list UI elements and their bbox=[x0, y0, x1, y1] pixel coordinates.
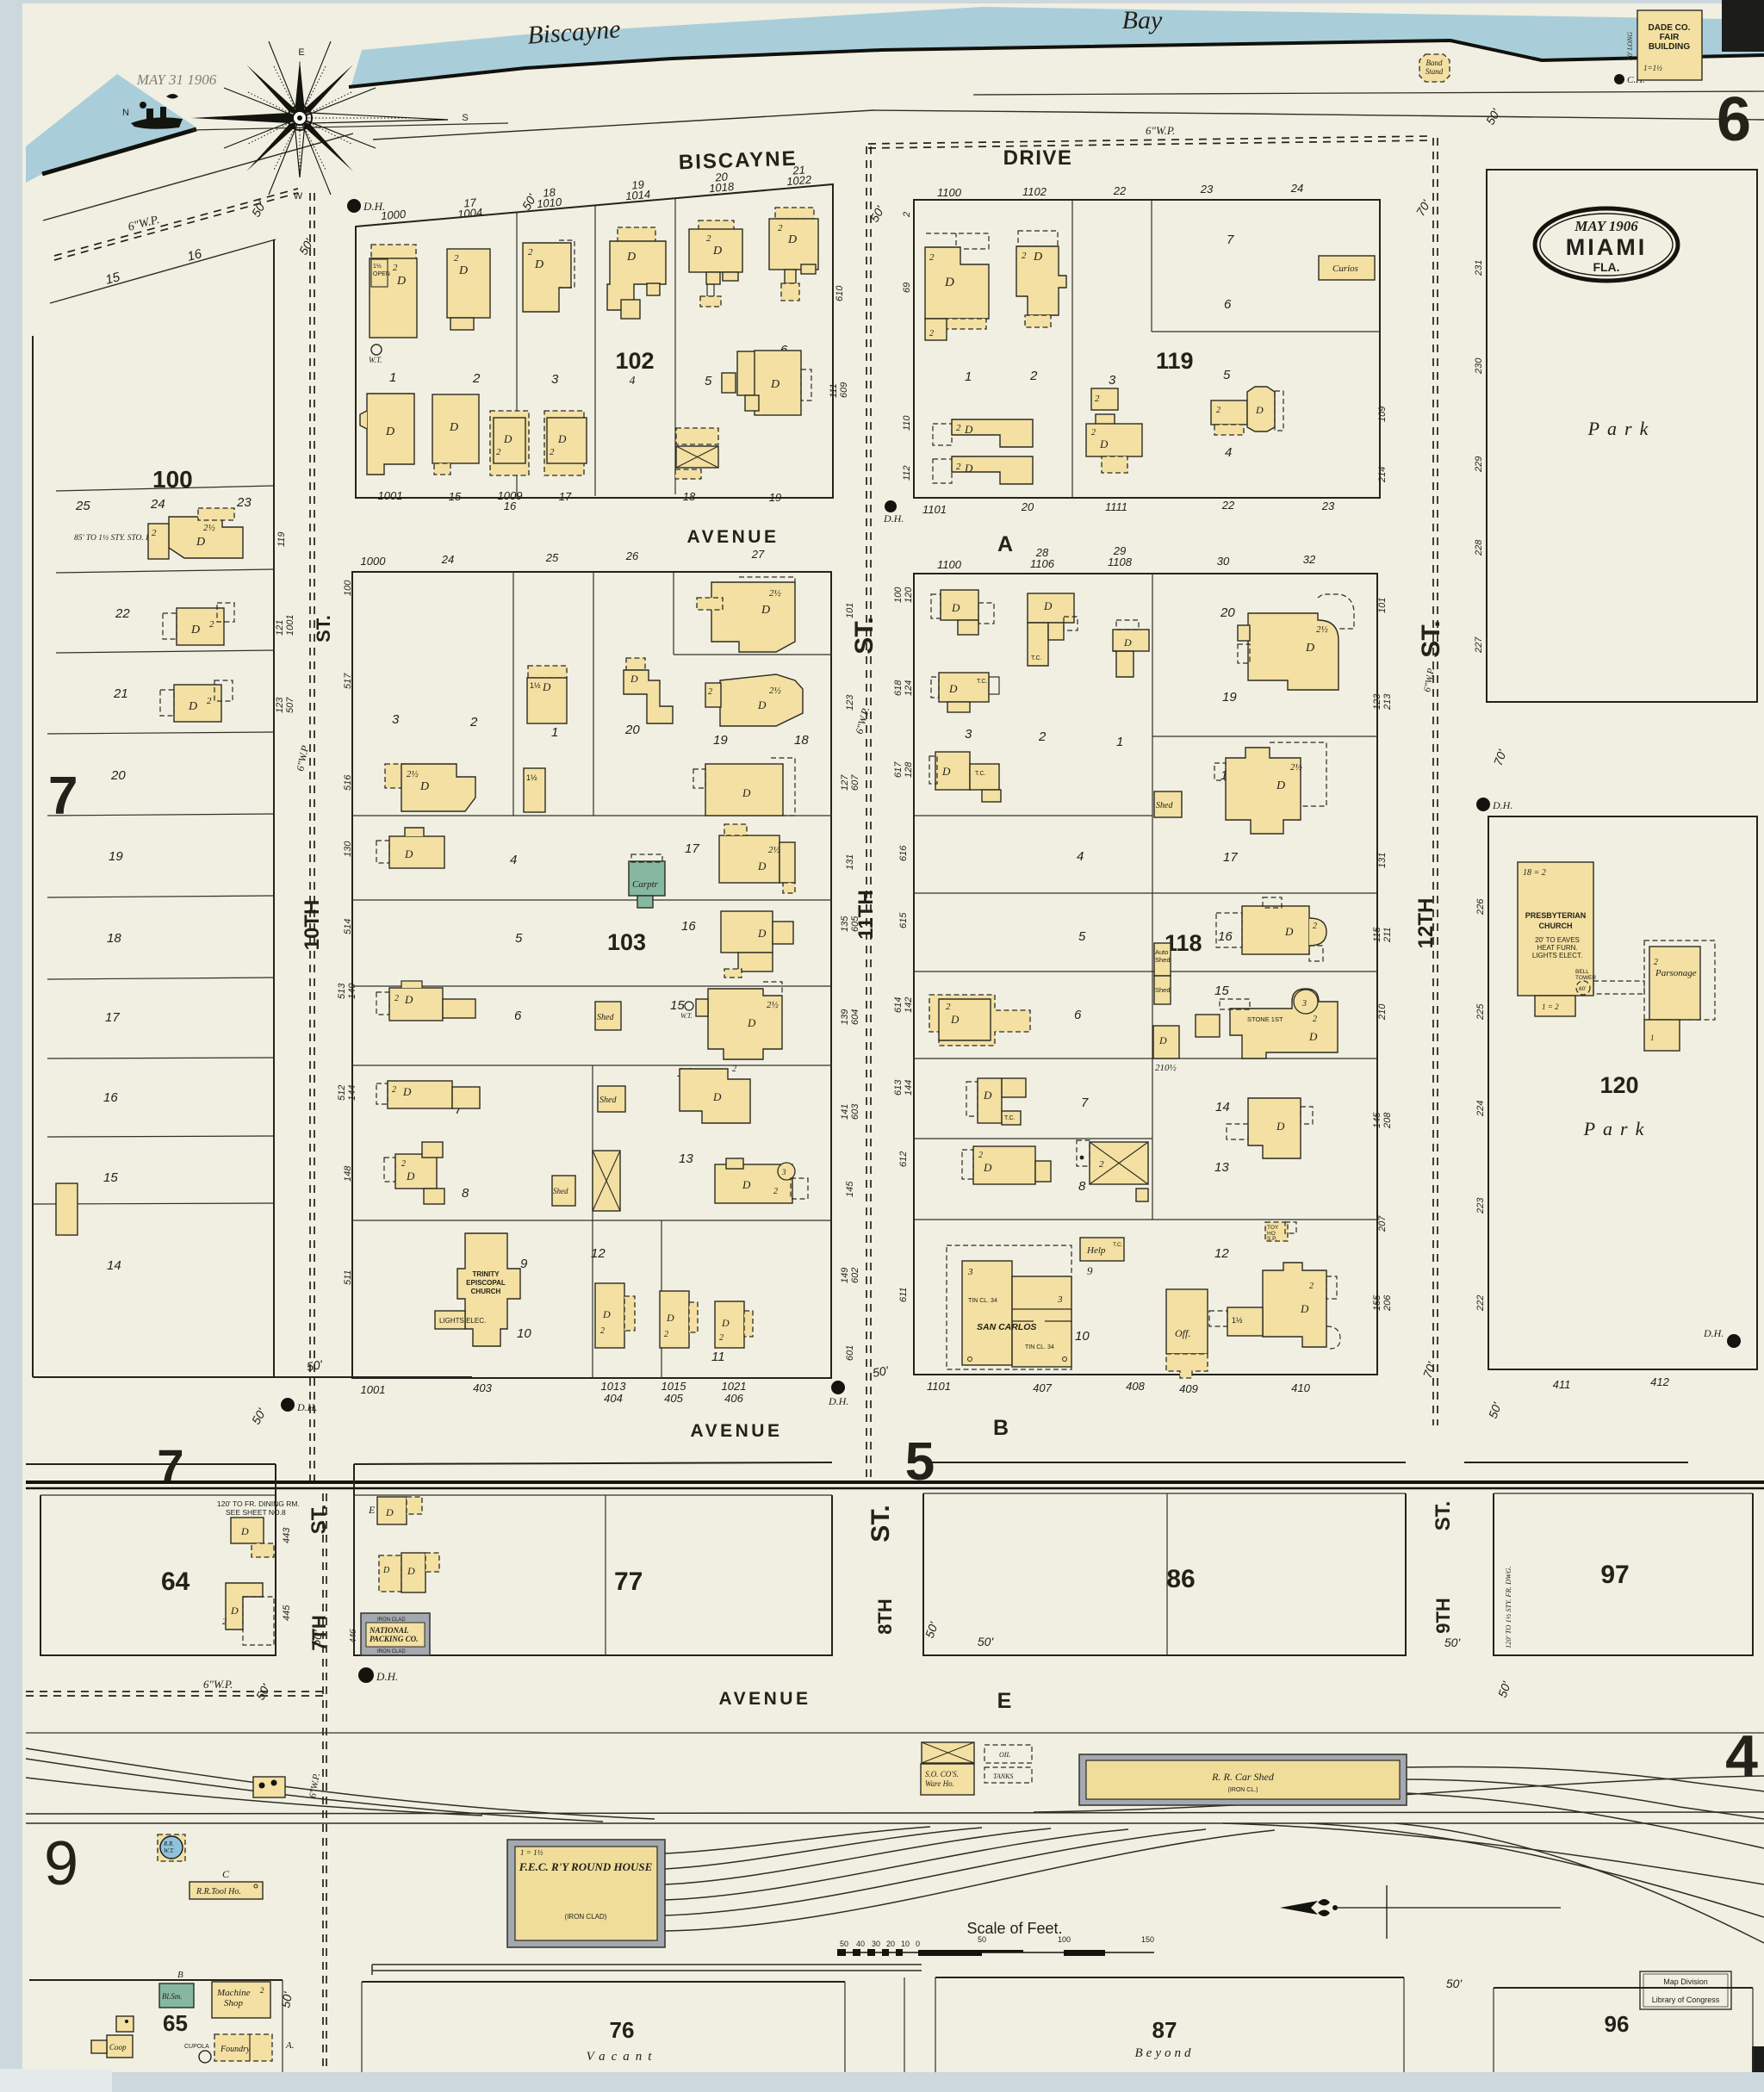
svg-text:D: D bbox=[602, 1308, 611, 1320]
svg-text:80' LONG: 80' LONG bbox=[1626, 32, 1634, 60]
svg-text:2: 2 bbox=[1029, 369, 1038, 383]
svg-text:1106: 1106 bbox=[1030, 557, 1055, 570]
svg-text:D: D bbox=[964, 462, 973, 475]
svg-text:R.R.: R.R. bbox=[163, 1841, 174, 1847]
svg-text:27: 27 bbox=[751, 548, 765, 561]
svg-text:2: 2 bbox=[978, 1151, 983, 1160]
svg-text:139: 139 bbox=[840, 1009, 850, 1025]
svg-text:123: 123 bbox=[845, 694, 855, 711]
svg-text:MIAMI: MIAMI bbox=[1566, 234, 1647, 260]
svg-text:222: 222 bbox=[1475, 1295, 1486, 1312]
svg-text:B: B bbox=[177, 1970, 183, 1980]
svg-text:D: D bbox=[419, 780, 429, 793]
svg-text:D: D bbox=[1158, 1034, 1167, 1046]
svg-text:D: D bbox=[402, 1085, 412, 1098]
svg-text:D: D bbox=[1099, 438, 1109, 450]
svg-text:2: 2 bbox=[207, 696, 212, 706]
svg-text:Shed: Shed bbox=[1156, 801, 1173, 810]
svg-text:1018: 1018 bbox=[709, 180, 736, 196]
svg-text:446: 446 bbox=[348, 1629, 358, 1643]
svg-text:D.H.: D.H. bbox=[883, 512, 904, 525]
svg-text:2: 2 bbox=[496, 447, 501, 457]
svg-text:3: 3 bbox=[1057, 1294, 1063, 1305]
svg-text:BELL: BELL bbox=[1575, 969, 1589, 975]
svg-text:W.T.: W.T. bbox=[164, 1847, 174, 1854]
svg-text:Foundry: Foundry bbox=[220, 2045, 251, 2054]
svg-text:102: 102 bbox=[615, 348, 654, 374]
svg-text:D.H.: D.H. bbox=[828, 1395, 848, 1407]
svg-text:2½: 2½ bbox=[769, 588, 781, 599]
svg-text:D: D bbox=[1255, 404, 1264, 416]
svg-text:110: 110 bbox=[902, 415, 912, 431]
svg-text:20: 20 bbox=[624, 723, 640, 737]
svg-text:2: 2 bbox=[708, 687, 712, 697]
svg-text:100: 100 bbox=[893, 587, 904, 603]
svg-text:2½: 2½ bbox=[203, 523, 215, 533]
svg-text:2: 2 bbox=[1313, 922, 1317, 931]
svg-text:3: 3 bbox=[1109, 373, 1116, 388]
svg-text:50': 50' bbox=[978, 1635, 995, 1648]
svg-text:6"W.P.: 6"W.P. bbox=[203, 1678, 233, 1691]
svg-text:210: 210 bbox=[1377, 1003, 1388, 1021]
svg-text:405: 405 bbox=[664, 1392, 683, 1405]
svg-text:2: 2 bbox=[902, 212, 912, 218]
svg-text:40: 40 bbox=[856, 1940, 865, 1948]
svg-text:2: 2 bbox=[1654, 958, 1658, 967]
svg-text:617: 617 bbox=[893, 761, 904, 778]
svg-text:231: 231 bbox=[1474, 260, 1484, 276]
svg-text:2: 2 bbox=[209, 619, 214, 630]
svg-text:Help: Help bbox=[1086, 1245, 1106, 1256]
svg-text:D: D bbox=[406, 1170, 415, 1183]
svg-text:2: 2 bbox=[1309, 1282, 1314, 1291]
svg-text:D: D bbox=[188, 700, 197, 713]
svg-text:PRESBYTERIAN: PRESBYTERIAN bbox=[1525, 911, 1587, 920]
svg-text:2: 2 bbox=[152, 528, 157, 538]
svg-text:D: D bbox=[757, 860, 767, 872]
svg-text:409: 409 bbox=[1179, 1382, 1198, 1395]
svg-text:512: 512 bbox=[337, 1085, 347, 1101]
svg-text:615: 615 bbox=[898, 912, 909, 928]
svg-text:24: 24 bbox=[441, 553, 454, 566]
svg-text:208: 208 bbox=[1382, 1112, 1393, 1129]
svg-text:S: S bbox=[462, 113, 468, 123]
svg-text:111: 111 bbox=[829, 383, 839, 398]
svg-text:124: 124 bbox=[904, 680, 914, 696]
svg-text:7: 7 bbox=[1081, 1096, 1089, 1110]
svg-text:Auto: Auto bbox=[1155, 948, 1168, 956]
svg-text:443: 443 bbox=[282, 1527, 292, 1543]
svg-text:TIN CL. 34: TIN CL. 34 bbox=[968, 1298, 997, 1304]
svg-text:Beyond: Beyond bbox=[1135, 2046, 1195, 2060]
svg-text:614: 614 bbox=[893, 997, 904, 1013]
svg-text:406: 406 bbox=[724, 1392, 743, 1405]
svg-text:IRON CLAD: IRON CLAD bbox=[377, 1617, 406, 1623]
svg-text:T.C.: T.C. bbox=[1113, 1242, 1123, 1248]
svg-text:123: 123 bbox=[275, 697, 285, 713]
svg-text:616: 616 bbox=[898, 845, 909, 861]
svg-text:86: 86 bbox=[1166, 1565, 1195, 1593]
svg-text:149: 149 bbox=[840, 1268, 850, 1283]
svg-text:Library of Congress: Library of Congress bbox=[1652, 1996, 1720, 2004]
svg-text:5: 5 bbox=[705, 374, 712, 388]
svg-text:1013: 1013 bbox=[601, 1380, 627, 1393]
svg-text:15: 15 bbox=[103, 1170, 118, 1185]
svg-text:612: 612 bbox=[898, 1152, 909, 1167]
svg-text:D: D bbox=[983, 1161, 992, 1174]
svg-text:Shed: Shed bbox=[1155, 956, 1171, 964]
svg-text:618: 618 bbox=[893, 680, 904, 696]
svg-text:144: 144 bbox=[904, 1080, 914, 1096]
svg-text:2½: 2½ bbox=[1290, 762, 1302, 773]
svg-text:5: 5 bbox=[515, 931, 523, 946]
svg-text:W: W bbox=[294, 191, 303, 202]
svg-text:4: 4 bbox=[630, 375, 636, 388]
svg-text:7: 7 bbox=[1227, 233, 1234, 247]
svg-text:D: D bbox=[407, 1565, 415, 1577]
svg-text:ST.: ST. bbox=[307, 1505, 331, 1535]
svg-text:2: 2 bbox=[778, 223, 783, 233]
svg-text:18 = 2: 18 = 2 bbox=[1523, 868, 1546, 878]
svg-text:D: D bbox=[742, 786, 751, 799]
svg-text:76: 76 bbox=[610, 2017, 635, 2043]
svg-text:2: 2 bbox=[956, 423, 961, 433]
svg-text:S.P.: S.P. bbox=[1267, 1236, 1277, 1242]
svg-text:15: 15 bbox=[1214, 984, 1229, 998]
svg-text:1: 1 bbox=[1116, 735, 1123, 749]
svg-text:101: 101 bbox=[845, 603, 855, 618]
svg-text:AVENUE: AVENUE bbox=[687, 527, 780, 547]
svg-text:Machine: Machine bbox=[216, 1988, 251, 1998]
svg-text:210½: 210½ bbox=[1155, 1063, 1177, 1073]
svg-text:87: 87 bbox=[1152, 2017, 1177, 2043]
svg-text:32: 32 bbox=[1303, 553, 1316, 566]
svg-text:230: 230 bbox=[1474, 357, 1484, 375]
svg-text:1100: 1100 bbox=[937, 558, 962, 571]
svg-text:D: D bbox=[712, 245, 722, 258]
svg-text:2: 2 bbox=[773, 1187, 778, 1196]
svg-text:2: 2 bbox=[222, 1617, 227, 1627]
svg-text:CUPOLA: CUPOLA bbox=[184, 2044, 209, 2050]
svg-text:2: 2 bbox=[394, 994, 399, 1003]
svg-text:9: 9 bbox=[520, 1257, 528, 1271]
svg-text:408: 408 bbox=[1126, 1380, 1145, 1393]
svg-text:609: 609 bbox=[839, 382, 849, 398]
svg-text:3: 3 bbox=[967, 1267, 973, 1277]
svg-text:8: 8 bbox=[1078, 1179, 1086, 1194]
svg-text:D: D bbox=[458, 264, 468, 277]
svg-text:4: 4 bbox=[1225, 445, 1232, 460]
svg-text:Bl.Sm.: Bl.Sm. bbox=[162, 1992, 183, 2001]
svg-text:Band: Band bbox=[1426, 59, 1443, 67]
svg-text:1=1½: 1=1½ bbox=[1643, 64, 1662, 72]
svg-text:109: 109 bbox=[1377, 407, 1388, 422]
svg-text:2: 2 bbox=[1313, 1015, 1317, 1024]
svg-text:Parsonage: Parsonage bbox=[1655, 968, 1697, 978]
svg-text:16: 16 bbox=[1218, 929, 1233, 944]
svg-text:2: 2 bbox=[392, 1085, 396, 1095]
svg-text:1: 1 bbox=[551, 725, 558, 740]
svg-text:223: 223 bbox=[1475, 1197, 1486, 1214]
svg-text:19: 19 bbox=[1222, 690, 1237, 705]
svg-text:120: 120 bbox=[1599, 1072, 1638, 1098]
svg-text:2: 2 bbox=[528, 247, 533, 258]
svg-text:602: 602 bbox=[850, 1268, 860, 1283]
svg-text:6: 6 bbox=[1717, 85, 1751, 154]
svg-text:120' TO FR. DINING RM.: 120' TO FR. DINING RM. bbox=[217, 1499, 300, 1508]
svg-text:N: N bbox=[122, 108, 129, 118]
svg-text:T.C.: T.C. bbox=[977, 679, 988, 685]
svg-text:1: 1 bbox=[389, 370, 396, 385]
svg-text:85' TO 1½ STY. STO. DW.: 85' TO 1½ STY. STO. DW. bbox=[74, 533, 159, 543]
svg-text:D: D bbox=[626, 251, 636, 264]
svg-text:D: D bbox=[983, 1089, 992, 1102]
svg-text:119: 119 bbox=[1156, 348, 1194, 374]
svg-text:77: 77 bbox=[614, 1567, 643, 1596]
svg-text:103: 103 bbox=[607, 929, 646, 955]
svg-text:10: 10 bbox=[517, 1326, 531, 1341]
svg-text:OPEN: OPEN bbox=[373, 271, 390, 277]
svg-text:Vacant: Vacant bbox=[587, 2050, 658, 2064]
svg-text:60': 60' bbox=[1579, 986, 1586, 992]
svg-text:BISCAYNE: BISCAYNE bbox=[678, 147, 798, 175]
svg-text:120' TO 1½ STY. FR. DWG.: 120' TO 1½ STY. FR. DWG. bbox=[1504, 1566, 1512, 1648]
svg-text:227: 227 bbox=[1474, 636, 1484, 654]
svg-text:C: C bbox=[222, 1868, 230, 1880]
svg-text:8: 8 bbox=[462, 1186, 469, 1201]
svg-text:1102: 1102 bbox=[1022, 185, 1047, 198]
svg-text:CHURCH: CHURCH bbox=[471, 1288, 501, 1295]
svg-text:ST.: ST. bbox=[1417, 620, 1445, 657]
svg-text:E: E bbox=[997, 1689, 1012, 1713]
svg-text:(IRON CLAD): (IRON CLAD) bbox=[565, 1913, 607, 1921]
svg-text:6: 6 bbox=[1224, 297, 1232, 312]
svg-text:1½: 1½ bbox=[373, 263, 382, 270]
svg-text:4: 4 bbox=[510, 853, 517, 867]
svg-text:123: 123 bbox=[1372, 693, 1382, 710]
svg-text:Curios: Curios bbox=[1332, 264, 1358, 274]
svg-text:19: 19 bbox=[769, 491, 781, 504]
svg-text:E: E bbox=[368, 1504, 376, 1516]
svg-text:20: 20 bbox=[110, 768, 126, 783]
svg-text:11: 11 bbox=[711, 1350, 725, 1364]
svg-text:D: D bbox=[761, 604, 770, 617]
svg-text:2: 2 bbox=[454, 253, 459, 264]
svg-text:1: 1 bbox=[965, 369, 972, 384]
svg-text:2: 2 bbox=[1099, 1159, 1104, 1170]
svg-text:LIGHTS ELEC.: LIGHTS ELEC. bbox=[439, 1317, 486, 1325]
svg-text:3: 3 bbox=[392, 712, 400, 727]
svg-text:D.H.: D.H. bbox=[1492, 799, 1512, 811]
svg-text:96: 96 bbox=[1605, 2011, 1630, 2037]
svg-text:D: D bbox=[503, 432, 512, 445]
svg-text:AVENUE: AVENUE bbox=[719, 1689, 811, 1709]
svg-text:410: 410 bbox=[1291, 1381, 1310, 1394]
svg-text:2: 2 bbox=[550, 447, 555, 457]
svg-text:0: 0 bbox=[916, 1940, 920, 1948]
svg-text:3: 3 bbox=[551, 372, 559, 387]
svg-text:228: 228 bbox=[1474, 539, 1484, 556]
svg-text:2: 2 bbox=[1091, 428, 1096, 438]
svg-text:STONE 1ST: STONE 1ST bbox=[1247, 1015, 1283, 1023]
svg-text:7: 7 bbox=[48, 767, 78, 826]
svg-text:OIL: OIL bbox=[999, 1751, 1010, 1759]
svg-text:18: 18 bbox=[107, 931, 121, 946]
svg-text:D: D bbox=[747, 1016, 756, 1029]
svg-text:CHURCH: CHURCH bbox=[1539, 922, 1573, 930]
svg-text:TANKS: TANKS bbox=[993, 1772, 1013, 1780]
svg-text:135: 135 bbox=[840, 916, 850, 932]
svg-text:604: 604 bbox=[850, 1009, 860, 1025]
svg-text:6"W.P.: 6"W.P. bbox=[1146, 124, 1175, 137]
svg-text:D: D bbox=[396, 275, 406, 288]
svg-text:1108: 1108 bbox=[1108, 556, 1133, 568]
svg-text:507: 507 bbox=[285, 697, 295, 713]
svg-text:D: D bbox=[385, 1506, 394, 1518]
svg-text:100: 100 bbox=[1058, 1935, 1071, 1944]
svg-text:T.C.: T.C. bbox=[1031, 655, 1042, 661]
svg-text:26: 26 bbox=[625, 549, 639, 562]
svg-text:16: 16 bbox=[681, 919, 696, 934]
svg-text:2½: 2½ bbox=[767, 1000, 779, 1010]
svg-text:R.R.Tool Ho.: R.R.Tool Ho. bbox=[196, 1887, 241, 1896]
svg-text:LIGHTS ELECT.: LIGHTS ELECT. bbox=[1532, 952, 1582, 959]
svg-text:D.H.: D.H. bbox=[296, 1401, 317, 1413]
svg-text:EPISCOPAL: EPISCOPAL bbox=[466, 1279, 506, 1287]
svg-text:9: 9 bbox=[44, 1829, 78, 1898]
svg-text:TOWER: TOWER bbox=[1575, 975, 1596, 981]
svg-text:Map Division: Map Division bbox=[1663, 1977, 1708, 1986]
svg-text:Off.: Off. bbox=[1175, 1327, 1190, 1339]
svg-text:B: B bbox=[993, 1416, 1009, 1440]
svg-text:1½: 1½ bbox=[530, 681, 541, 690]
svg-text:100: 100 bbox=[152, 466, 193, 493]
svg-text:50': 50' bbox=[1446, 1977, 1463, 1990]
svg-text:30: 30 bbox=[872, 1940, 880, 1948]
svg-text:IRON CLAD: IRON CLAD bbox=[377, 1649, 406, 1654]
svg-text:2½: 2½ bbox=[768, 845, 780, 855]
svg-text:97: 97 bbox=[1600, 1561, 1629, 1589]
svg-text:613: 613 bbox=[893, 1079, 904, 1096]
svg-text:155: 155 bbox=[1372, 1294, 1382, 1311]
svg-text:23: 23 bbox=[236, 495, 252, 510]
svg-text:12: 12 bbox=[1214, 1246, 1229, 1261]
svg-text:142: 142 bbox=[904, 997, 914, 1013]
svg-text:2: 2 bbox=[1038, 729, 1047, 744]
svg-text:64: 64 bbox=[161, 1567, 190, 1596]
svg-text:PACKING CO.: PACKING CO. bbox=[370, 1635, 418, 1643]
svg-text:2: 2 bbox=[732, 1065, 736, 1074]
svg-text:FLA.: FLA. bbox=[1593, 260, 1619, 274]
svg-text:A.: A. bbox=[285, 2040, 294, 2051]
svg-text:1001: 1001 bbox=[378, 489, 403, 502]
svg-text:D: D bbox=[190, 624, 200, 636]
svg-text:D: D bbox=[951, 601, 960, 614]
svg-text:Carptr: Carptr bbox=[632, 879, 659, 890]
svg-text:2: 2 bbox=[719, 1333, 724, 1343]
svg-text:W.T.: W.T. bbox=[680, 1012, 693, 1020]
svg-text:4: 4 bbox=[1725, 1723, 1758, 1789]
svg-text:69: 69 bbox=[902, 282, 912, 293]
svg-text:12: 12 bbox=[591, 1246, 606, 1261]
svg-text:22: 22 bbox=[1113, 184, 1127, 197]
svg-text:15: 15 bbox=[449, 490, 462, 503]
svg-text:D: D bbox=[1123, 636, 1132, 649]
svg-text:14: 14 bbox=[107, 1258, 121, 1273]
svg-text:2: 2 bbox=[469, 715, 478, 729]
svg-text:Bay: Bay bbox=[1122, 6, 1163, 34]
svg-text:Ware Ho.: Ware Ho. bbox=[925, 1779, 954, 1788]
svg-text:127: 127 bbox=[840, 774, 850, 791]
svg-text:E: E bbox=[298, 47, 304, 58]
svg-text:NATIONAL: NATIONAL bbox=[369, 1626, 409, 1635]
svg-text:D: D bbox=[382, 1566, 390, 1575]
svg-text:MAY 1906: MAY 1906 bbox=[1574, 218, 1638, 234]
svg-text:T.C.: T.C. bbox=[975, 771, 986, 777]
svg-text:20: 20 bbox=[1220, 605, 1235, 620]
svg-text:1½: 1½ bbox=[526, 773, 537, 782]
svg-text:Park: Park bbox=[1587, 418, 1656, 439]
svg-text:D: D bbox=[770, 378, 780, 391]
svg-text:Shed: Shed bbox=[553, 1187, 568, 1195]
svg-text:AVENUE: AVENUE bbox=[691, 1421, 783, 1441]
svg-text:50: 50 bbox=[840, 1940, 848, 1948]
svg-text:D: D bbox=[712, 1090, 722, 1103]
svg-text:13: 13 bbox=[1214, 1160, 1229, 1175]
svg-text:607: 607 bbox=[850, 774, 860, 791]
svg-text:D: D bbox=[941, 765, 951, 778]
svg-text:65: 65 bbox=[163, 2010, 188, 2036]
svg-text:412: 412 bbox=[1650, 1375, 1669, 1388]
svg-text:D: D bbox=[630, 673, 638, 685]
svg-text:1101: 1101 bbox=[922, 503, 947, 516]
svg-text:19: 19 bbox=[109, 849, 123, 864]
svg-text:119: 119 bbox=[276, 531, 287, 547]
svg-text:2: 2 bbox=[1022, 251, 1027, 261]
svg-text:DADE CO.: DADE CO. bbox=[1649, 23, 1691, 33]
svg-text:17: 17 bbox=[685, 841, 699, 856]
svg-text:403: 403 bbox=[473, 1381, 492, 1394]
svg-text:610: 610 bbox=[835, 285, 845, 301]
svg-text:21: 21 bbox=[113, 686, 128, 701]
svg-text:24: 24 bbox=[1290, 182, 1303, 195]
svg-text:411: 411 bbox=[1553, 1378, 1571, 1391]
svg-text:1100: 1100 bbox=[937, 186, 962, 199]
svg-text:229: 229 bbox=[1474, 456, 1484, 473]
svg-text:S.O. CO'S.: S.O. CO'S. bbox=[925, 1770, 959, 1779]
svg-text:2: 2 bbox=[929, 252, 935, 263]
svg-text:D: D bbox=[534, 258, 543, 271]
svg-text:D: D bbox=[230, 1605, 239, 1617]
svg-text:13: 13 bbox=[679, 1152, 693, 1166]
svg-text:D: D bbox=[950, 1013, 960, 1026]
svg-text:25: 25 bbox=[545, 551, 559, 564]
svg-text:2: 2 bbox=[1095, 394, 1100, 404]
svg-text:20: 20 bbox=[1021, 500, 1034, 513]
svg-text:50: 50 bbox=[978, 1935, 986, 1944]
svg-text:TRINITY: TRINITY bbox=[472, 1270, 500, 1278]
svg-text:145: 145 bbox=[1372, 1112, 1382, 1128]
svg-text:24: 24 bbox=[150, 497, 165, 512]
svg-text:101: 101 bbox=[1377, 598, 1388, 613]
svg-text:22: 22 bbox=[115, 606, 130, 621]
svg-text:23: 23 bbox=[1321, 500, 1335, 512]
svg-text:1½: 1½ bbox=[1232, 1316, 1243, 1325]
svg-text:23: 23 bbox=[1200, 183, 1214, 196]
svg-text:18: 18 bbox=[794, 733, 809, 748]
svg-text:513: 513 bbox=[337, 983, 347, 999]
svg-text:2: 2 bbox=[260, 1986, 264, 1995]
